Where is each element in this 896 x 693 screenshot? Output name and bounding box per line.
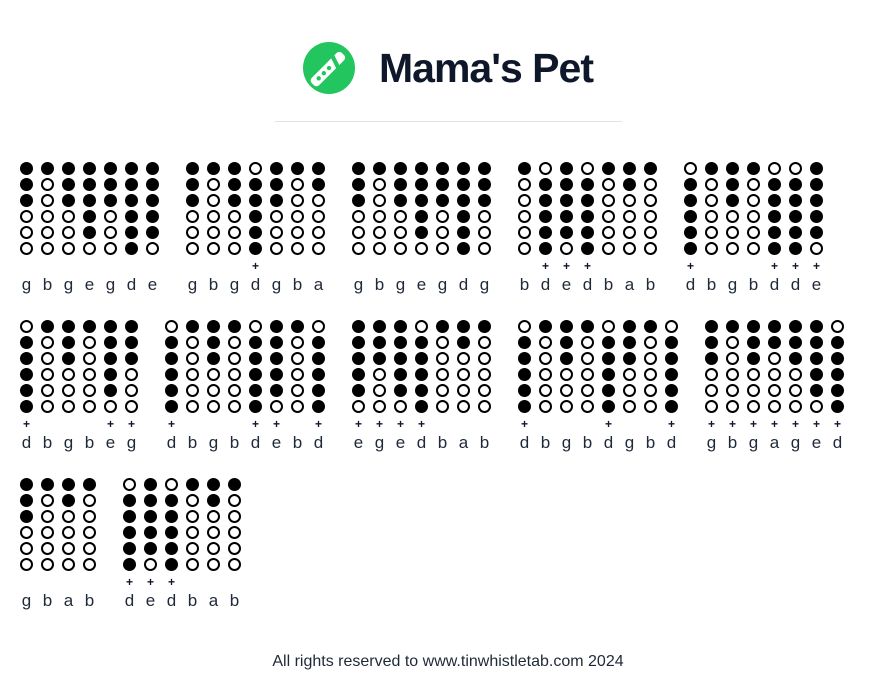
note-column: d [457, 162, 470, 295]
hole-open [291, 178, 304, 191]
hole-stack [768, 320, 781, 413]
hole-open [726, 336, 739, 349]
hole-stack [165, 320, 178, 413]
hole-stack [623, 320, 636, 413]
hole-open [228, 384, 241, 397]
hole-covered [789, 242, 802, 255]
note-letter: a [770, 432, 779, 453]
hole-open [41, 336, 54, 349]
octave-plus-mark: + [23, 416, 30, 432]
hole-covered [20, 336, 33, 349]
note-letter: g [707, 432, 716, 453]
hole-covered [20, 178, 33, 191]
hole-covered [62, 194, 75, 207]
note-letter: b [520, 274, 529, 295]
note-column: b [41, 162, 54, 295]
octave-plus-mark: + [750, 416, 757, 432]
hole-covered [270, 352, 283, 365]
hole-open [436, 210, 449, 223]
note-column: d [125, 162, 138, 295]
hole-stack [228, 320, 241, 413]
hole-covered [207, 162, 220, 175]
hole-covered [810, 210, 823, 223]
hole-open [41, 368, 54, 381]
hole-open [83, 336, 96, 349]
hole-stack [478, 320, 491, 413]
hole-covered [768, 242, 781, 255]
hole-stack [415, 162, 428, 255]
note-letter: g [106, 274, 115, 295]
note-letter: b [43, 590, 52, 611]
note-letter: b [583, 432, 592, 453]
hole-covered [810, 336, 823, 349]
note-letter: g [749, 432, 758, 453]
measure: +dbgb+d+d+e [684, 162, 823, 295]
hole-open [539, 352, 552, 365]
hole-covered [104, 336, 117, 349]
hole-stack [207, 162, 220, 255]
hole-stack [41, 320, 54, 413]
hole-open [768, 352, 781, 365]
hole-open [602, 194, 615, 207]
hole-open [62, 400, 75, 413]
hole-stack [270, 320, 283, 413]
hole-open [518, 210, 531, 223]
hole-open [373, 384, 386, 397]
hole-covered [831, 384, 844, 397]
hole-covered [581, 226, 594, 239]
hole-covered [789, 194, 802, 207]
hole-open [83, 242, 96, 255]
hole-open [436, 384, 449, 397]
hole-stack [810, 320, 823, 413]
hole-open [705, 226, 718, 239]
hole-open [20, 526, 33, 539]
note-column: b [291, 162, 304, 295]
hole-covered [810, 384, 823, 397]
hole-covered [810, 368, 823, 381]
note-column: +d [415, 320, 428, 453]
hole-stack [249, 162, 262, 255]
hole-open [270, 210, 283, 223]
hole-stack [125, 162, 138, 255]
note-letter: g [354, 274, 363, 295]
octave-plus-mark: + [563, 258, 570, 274]
hole-open [789, 384, 802, 397]
hole-open [726, 352, 739, 365]
hole-open [186, 494, 199, 507]
hole-open [747, 384, 760, 397]
note-column: +g [125, 320, 138, 453]
note-column: e [83, 162, 96, 295]
hole-open [478, 210, 491, 223]
hole-open [747, 368, 760, 381]
hole-open [228, 242, 241, 255]
hole-covered [249, 178, 262, 191]
note-column: b [228, 320, 241, 453]
hole-covered [581, 210, 594, 223]
hole-open [623, 194, 636, 207]
hole-open [768, 368, 781, 381]
hole-covered [768, 226, 781, 239]
hole-open [104, 400, 117, 413]
hole-stack [560, 162, 573, 255]
hole-covered [228, 178, 241, 191]
octave-plus-mark: + [668, 416, 675, 432]
hole-open [291, 210, 304, 223]
note-letter: d [459, 274, 468, 295]
hole-stack [228, 478, 241, 571]
note-column: e [415, 162, 428, 295]
note-letter: g [127, 432, 136, 453]
hole-open [373, 242, 386, 255]
hole-stack [249, 320, 262, 413]
hole-open [228, 226, 241, 239]
hole-stack [602, 162, 615, 255]
hole-covered [373, 320, 386, 333]
hole-covered [144, 494, 157, 507]
note-letter: b [293, 274, 302, 295]
hole-covered [415, 384, 428, 397]
hole-covered [207, 320, 220, 333]
hole-open [62, 526, 75, 539]
note-column: g [436, 162, 449, 295]
note-column: g [623, 320, 636, 453]
note-letter: e [106, 432, 115, 453]
hole-covered [665, 368, 678, 381]
measure: gbgegde [20, 162, 159, 295]
note-column: g [207, 320, 220, 453]
hole-covered [165, 526, 178, 539]
note-column: g [186, 162, 199, 295]
hole-covered [518, 162, 531, 175]
hole-covered [415, 226, 428, 239]
hole-covered [186, 478, 199, 491]
hole-open [705, 178, 718, 191]
hole-covered [228, 320, 241, 333]
hole-open [186, 336, 199, 349]
hole-open [291, 242, 304, 255]
hole-covered [146, 210, 159, 223]
hole-stack [83, 320, 96, 413]
note-letter: b [438, 432, 447, 453]
note-column: +e [560, 162, 573, 295]
measure: gbab [20, 478, 96, 611]
note-column: +d [20, 320, 33, 453]
hole-covered [457, 226, 470, 239]
hole-stack [62, 320, 75, 413]
note-letter: d [127, 274, 136, 295]
hole-open [291, 352, 304, 365]
hole-stack [644, 320, 657, 413]
hole-open [165, 478, 178, 491]
note-letter: g [396, 274, 405, 295]
measure: gbg+dgba [186, 162, 325, 295]
hole-covered [125, 210, 138, 223]
octave-plus-mark: + [126, 574, 133, 590]
hole-covered [20, 368, 33, 381]
hole-open [228, 352, 241, 365]
hole-open [436, 226, 449, 239]
note-column: +d [684, 162, 697, 295]
hole-covered [768, 194, 781, 207]
hole-covered [123, 494, 136, 507]
note-column: g [478, 162, 491, 295]
hole-stack [726, 162, 739, 255]
note-column: +e [352, 320, 365, 453]
hole-open [373, 400, 386, 413]
hole-covered [457, 210, 470, 223]
hole-covered [684, 226, 697, 239]
hole-covered [457, 242, 470, 255]
hole-open [312, 226, 325, 239]
note-letter: d [167, 432, 176, 453]
hole-covered [768, 210, 781, 223]
note-column: b [41, 320, 54, 453]
hole-open [623, 400, 636, 413]
note-column: +g [373, 320, 386, 453]
hole-covered [125, 226, 138, 239]
hole-covered [20, 162, 33, 175]
hole-covered [810, 162, 823, 175]
hole-open [747, 178, 760, 191]
hole-open [518, 320, 531, 333]
hole-open [83, 400, 96, 413]
hole-covered [228, 478, 241, 491]
hole-covered [20, 400, 33, 413]
octave-plus-mark: + [605, 416, 612, 432]
hole-open [207, 510, 220, 523]
hole-covered [705, 162, 718, 175]
hole-covered [270, 178, 283, 191]
hole-covered [581, 320, 594, 333]
measure: +dbgb+d+eb+d [165, 320, 325, 453]
hole-open [373, 226, 386, 239]
hole-covered [560, 194, 573, 207]
hole-open [123, 478, 136, 491]
note-letter: d [686, 274, 695, 295]
octave-plus-mark: + [771, 258, 778, 274]
hole-covered [810, 352, 823, 365]
hole-covered [249, 336, 262, 349]
hole-covered [747, 162, 760, 175]
note-column: a [62, 478, 75, 611]
note-column: +d [602, 320, 615, 453]
hole-covered [104, 194, 117, 207]
hole-covered [312, 162, 325, 175]
header: Mama's Pet [0, 0, 896, 94]
hole-open [207, 542, 220, 555]
hole-stack [810, 162, 823, 255]
hole-covered [207, 494, 220, 507]
hole-covered [726, 194, 739, 207]
hole-covered [270, 162, 283, 175]
hole-open [228, 510, 241, 523]
hole-stack [518, 320, 531, 413]
hole-open [644, 352, 657, 365]
note-letter: d [583, 274, 592, 295]
hole-covered [810, 320, 823, 333]
hole-covered [623, 162, 636, 175]
note-column: b [705, 162, 718, 295]
hole-open [581, 368, 594, 381]
hole-open [352, 210, 365, 223]
tab-sheet: gbgegdegbg+dgbagbgegdgb+d+e+dbab+dbgb+d+… [0, 122, 896, 611]
note-letter: g [188, 274, 197, 295]
hole-stack [602, 320, 615, 413]
hole-covered [684, 242, 697, 255]
hole-open [62, 210, 75, 223]
hole-covered [352, 162, 365, 175]
note-letter: a [625, 274, 634, 295]
hole-open [560, 400, 573, 413]
measure: +dbgb+e+g [20, 320, 138, 453]
hole-stack [581, 162, 594, 255]
hole-covered [249, 210, 262, 223]
page-title: Mama's Pet [379, 45, 593, 92]
hole-covered [20, 352, 33, 365]
note-letter: g [438, 274, 447, 295]
hole-open [270, 242, 283, 255]
hole-open [705, 368, 718, 381]
hole-open [186, 352, 199, 365]
hole-covered [831, 352, 844, 365]
octave-plus-mark: + [252, 258, 259, 274]
note-column: +e [394, 320, 407, 453]
hole-open [581, 400, 594, 413]
note-letter: d [604, 432, 613, 453]
hole-covered [249, 384, 262, 397]
hole-covered [312, 400, 325, 413]
hole-covered [165, 352, 178, 365]
hole-covered [373, 352, 386, 365]
hole-stack [146, 162, 159, 255]
hole-covered [62, 162, 75, 175]
hole-open [747, 242, 760, 255]
hole-open [20, 558, 33, 571]
hole-covered [41, 162, 54, 175]
hole-covered [705, 352, 718, 365]
hole-covered [726, 320, 739, 333]
hole-open [228, 336, 241, 349]
hole-covered [560, 162, 573, 175]
hole-covered [312, 352, 325, 365]
note-column: +d [581, 162, 594, 295]
hole-stack [539, 162, 552, 255]
page: Mama's Pet gbgegdegbg+dgbagbgegdgb+d+e+d… [0, 0, 896, 693]
note-column: g [726, 162, 739, 295]
hole-open [41, 384, 54, 397]
note-letter: g [64, 432, 73, 453]
hole-covered [62, 478, 75, 491]
hole-open [623, 384, 636, 397]
hole-covered [457, 320, 470, 333]
hole-open [41, 526, 54, 539]
hole-open [768, 400, 781, 413]
hole-covered [270, 320, 283, 333]
note-letter: b [646, 432, 655, 453]
hole-open [539, 400, 552, 413]
hole-covered [789, 178, 802, 191]
hole-open [644, 194, 657, 207]
hole-stack [41, 162, 54, 255]
hole-covered [602, 352, 615, 365]
hole-covered [144, 542, 157, 555]
hole-covered [125, 162, 138, 175]
hole-open [602, 242, 615, 255]
hole-open [83, 352, 96, 365]
hole-covered [539, 178, 552, 191]
hole-covered [20, 494, 33, 507]
note-letter: g [230, 274, 239, 295]
hole-covered [726, 162, 739, 175]
octave-plus-mark: + [418, 416, 425, 432]
hole-stack [186, 162, 199, 255]
hole-open [644, 226, 657, 239]
note-letter: d [251, 432, 260, 453]
note-column: b [539, 320, 552, 453]
hole-stack [373, 162, 386, 255]
note-letter: b [293, 432, 302, 453]
note-column: +e [270, 320, 283, 453]
hole-covered [726, 178, 739, 191]
hole-open [83, 558, 96, 571]
measure: +d+e+dbab [123, 478, 241, 611]
hole-open [705, 242, 718, 255]
hole-open [104, 242, 117, 255]
hole-covered [478, 178, 491, 191]
hole-covered [518, 336, 531, 349]
hole-covered [789, 352, 802, 365]
hole-stack [436, 320, 449, 413]
hole-stack [104, 162, 117, 255]
hole-covered [665, 400, 678, 413]
note-letter: b [541, 432, 550, 453]
hole-covered [104, 384, 117, 397]
hole-open [602, 226, 615, 239]
note-letter: d [251, 274, 260, 295]
hole-covered [789, 226, 802, 239]
note-column: +d [665, 320, 678, 453]
hole-covered [539, 194, 552, 207]
hole-covered [83, 178, 96, 191]
hole-open [560, 242, 573, 255]
hole-open [186, 226, 199, 239]
hole-stack [186, 478, 199, 571]
hole-open [726, 384, 739, 397]
hole-open [644, 336, 657, 349]
note-column: b [186, 320, 199, 453]
hole-open [726, 210, 739, 223]
hole-open [186, 210, 199, 223]
hole-covered [20, 510, 33, 523]
hole-open [41, 510, 54, 523]
hole-covered [352, 194, 365, 207]
note-letter: d [791, 274, 800, 295]
hole-covered [104, 352, 117, 365]
hole-open [373, 194, 386, 207]
note-column: a [457, 320, 470, 453]
hole-stack [352, 320, 365, 413]
octave-plus-mark: + [584, 258, 591, 274]
note-letter: e [148, 274, 157, 295]
measure: +e+g+e+dbab [352, 320, 491, 453]
hole-open [83, 526, 96, 539]
hole-open [165, 320, 178, 333]
hole-covered [312, 384, 325, 397]
hole-stack [312, 162, 325, 255]
hole-covered [581, 242, 594, 255]
